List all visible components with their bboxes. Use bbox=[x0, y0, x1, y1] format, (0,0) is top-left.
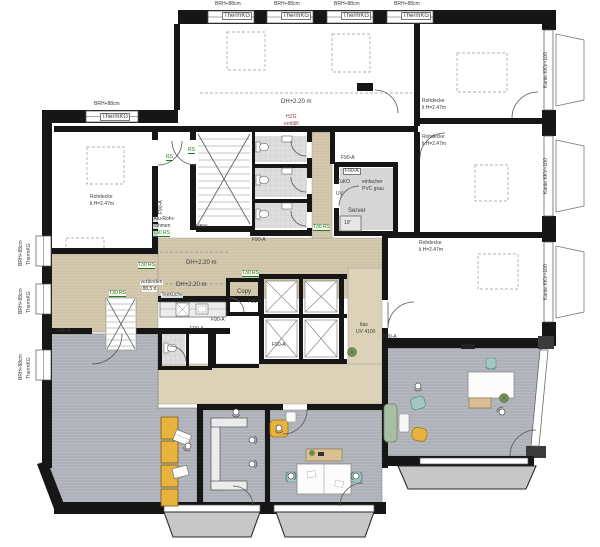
window-glazing-label: ThermKG bbox=[341, 12, 371, 20]
f90-label: F90-A bbox=[252, 238, 266, 243]
ceiling-height-label: DH+2.20 m bbox=[186, 260, 217, 266]
floor-plan-drawing bbox=[0, 0, 600, 547]
rohdecke-label: li.H=2.47m bbox=[419, 248, 443, 253]
window-parapet-label: BRH+88cm bbox=[94, 102, 120, 107]
f90-label: F90-A bbox=[211, 318, 225, 323]
panel-note-label: tlas bbox=[360, 323, 368, 328]
hzg-label: entfällt bbox=[284, 122, 299, 127]
subpanel-label: UV bbox=[336, 192, 343, 197]
window-glazing-label: ThermKG bbox=[222, 12, 252, 20]
window-parapet-label: BRH+88cm bbox=[334, 2, 360, 7]
rs-label: RS bbox=[188, 148, 195, 154]
window-parapet-label: BRH+88cm bbox=[19, 354, 24, 380]
window-parapet-label: BRH+88cm bbox=[394, 2, 420, 7]
f90-label: F90-A bbox=[272, 343, 286, 348]
rack-label: 19" bbox=[344, 221, 351, 226]
window-glazing-label: ThermKG bbox=[27, 243, 32, 265]
wall-stub bbox=[357, 83, 373, 91]
server-label: Server bbox=[348, 208, 366, 214]
rohdecke-label: li.H=2.47m bbox=[90, 202, 114, 207]
floor-note-label: einfacher bbox=[362, 180, 383, 185]
f90-label: F90-A bbox=[343, 168, 361, 175]
wall-monitor bbox=[461, 344, 475, 349]
f90-label: F90-A bbox=[383, 335, 397, 340]
kitchen-counter bbox=[160, 302, 226, 317]
window-parapet-label: BRH+88cm bbox=[274, 2, 300, 7]
rohdecke-label: Rohdecke bbox=[422, 135, 445, 140]
connect-note-label: 88,5 d bbox=[142, 287, 157, 292]
hzg-label: HZG bbox=[286, 115, 297, 120]
window-glazing-label: ThermKG bbox=[100, 113, 130, 121]
f90-label: F90-A bbox=[57, 329, 71, 334]
rohdecke-label: li.H=2.47m bbox=[422, 142, 446, 147]
supply-air-label: ZuKO bbox=[337, 180, 350, 185]
kitchen-label: Teeküche bbox=[161, 293, 183, 298]
yellow-lockers bbox=[161, 417, 178, 506]
right-window-bays bbox=[556, 34, 584, 318]
window-edge-label: Kante KKV=100 bbox=[544, 158, 549, 194]
window-glazing-label: ThermKG bbox=[281, 12, 311, 20]
connect-note-label: verbinden bbox=[140, 280, 163, 285]
t30-label: T30 RS bbox=[313, 225, 330, 231]
window-parapet-label: BRH+88cm bbox=[19, 288, 24, 314]
window-parapet-label: BRH+88cm bbox=[19, 240, 24, 266]
door-frame-note: rahmen bbox=[153, 224, 171, 229]
f90-label: F90-A bbox=[341, 156, 355, 161]
floor-note-label: PVC grau bbox=[362, 187, 384, 192]
rs-label: RS bbox=[166, 155, 173, 161]
window-edge-label: Kante KKV=100 bbox=[544, 264, 549, 300]
floor-plan: BRH+88cm BRH+88cm BRH+88cm BRH+88cm Ther… bbox=[0, 0, 600, 547]
rohdecke-label: li.H=2.47m bbox=[422, 106, 446, 111]
rohdecke-label: Rohdecke bbox=[422, 99, 445, 104]
door-frame-note: Alu-Rohr- bbox=[153, 217, 175, 222]
panel-note-label: UV 4100 bbox=[356, 330, 375, 335]
rohdecke-label: Rohdecke bbox=[90, 195, 113, 200]
ceiling-height-label: DH+2.20 m bbox=[281, 99, 312, 105]
ceiling-height-label: DH+2.20 m bbox=[176, 282, 207, 288]
t30-label: T30 RS bbox=[138, 263, 155, 269]
window-parapet-label: BRH+88cm bbox=[215, 2, 241, 7]
f90-label: F90-A bbox=[190, 327, 204, 332]
window-glazing-label: ThermKG bbox=[27, 291, 32, 313]
t30-label: T30 RS bbox=[109, 291, 126, 297]
f90-label: F90-A bbox=[159, 200, 164, 214]
window-glazing-label: ThermKG bbox=[401, 12, 431, 20]
t30-label: T30 RS bbox=[153, 231, 170, 237]
stair-main bbox=[196, 132, 252, 226]
window-glazing-label: ThermKG bbox=[27, 357, 32, 379]
rohdecke-label: Rohdecke bbox=[419, 241, 442, 246]
f90-label: F90-A bbox=[248, 300, 262, 305]
t30-label: T30 RS bbox=[242, 271, 259, 277]
copy-room-label: Copy bbox=[237, 289, 251, 295]
bbw-label: BBW bbox=[196, 225, 207, 230]
window-edge-label: Kante KKV=100 bbox=[544, 52, 549, 88]
